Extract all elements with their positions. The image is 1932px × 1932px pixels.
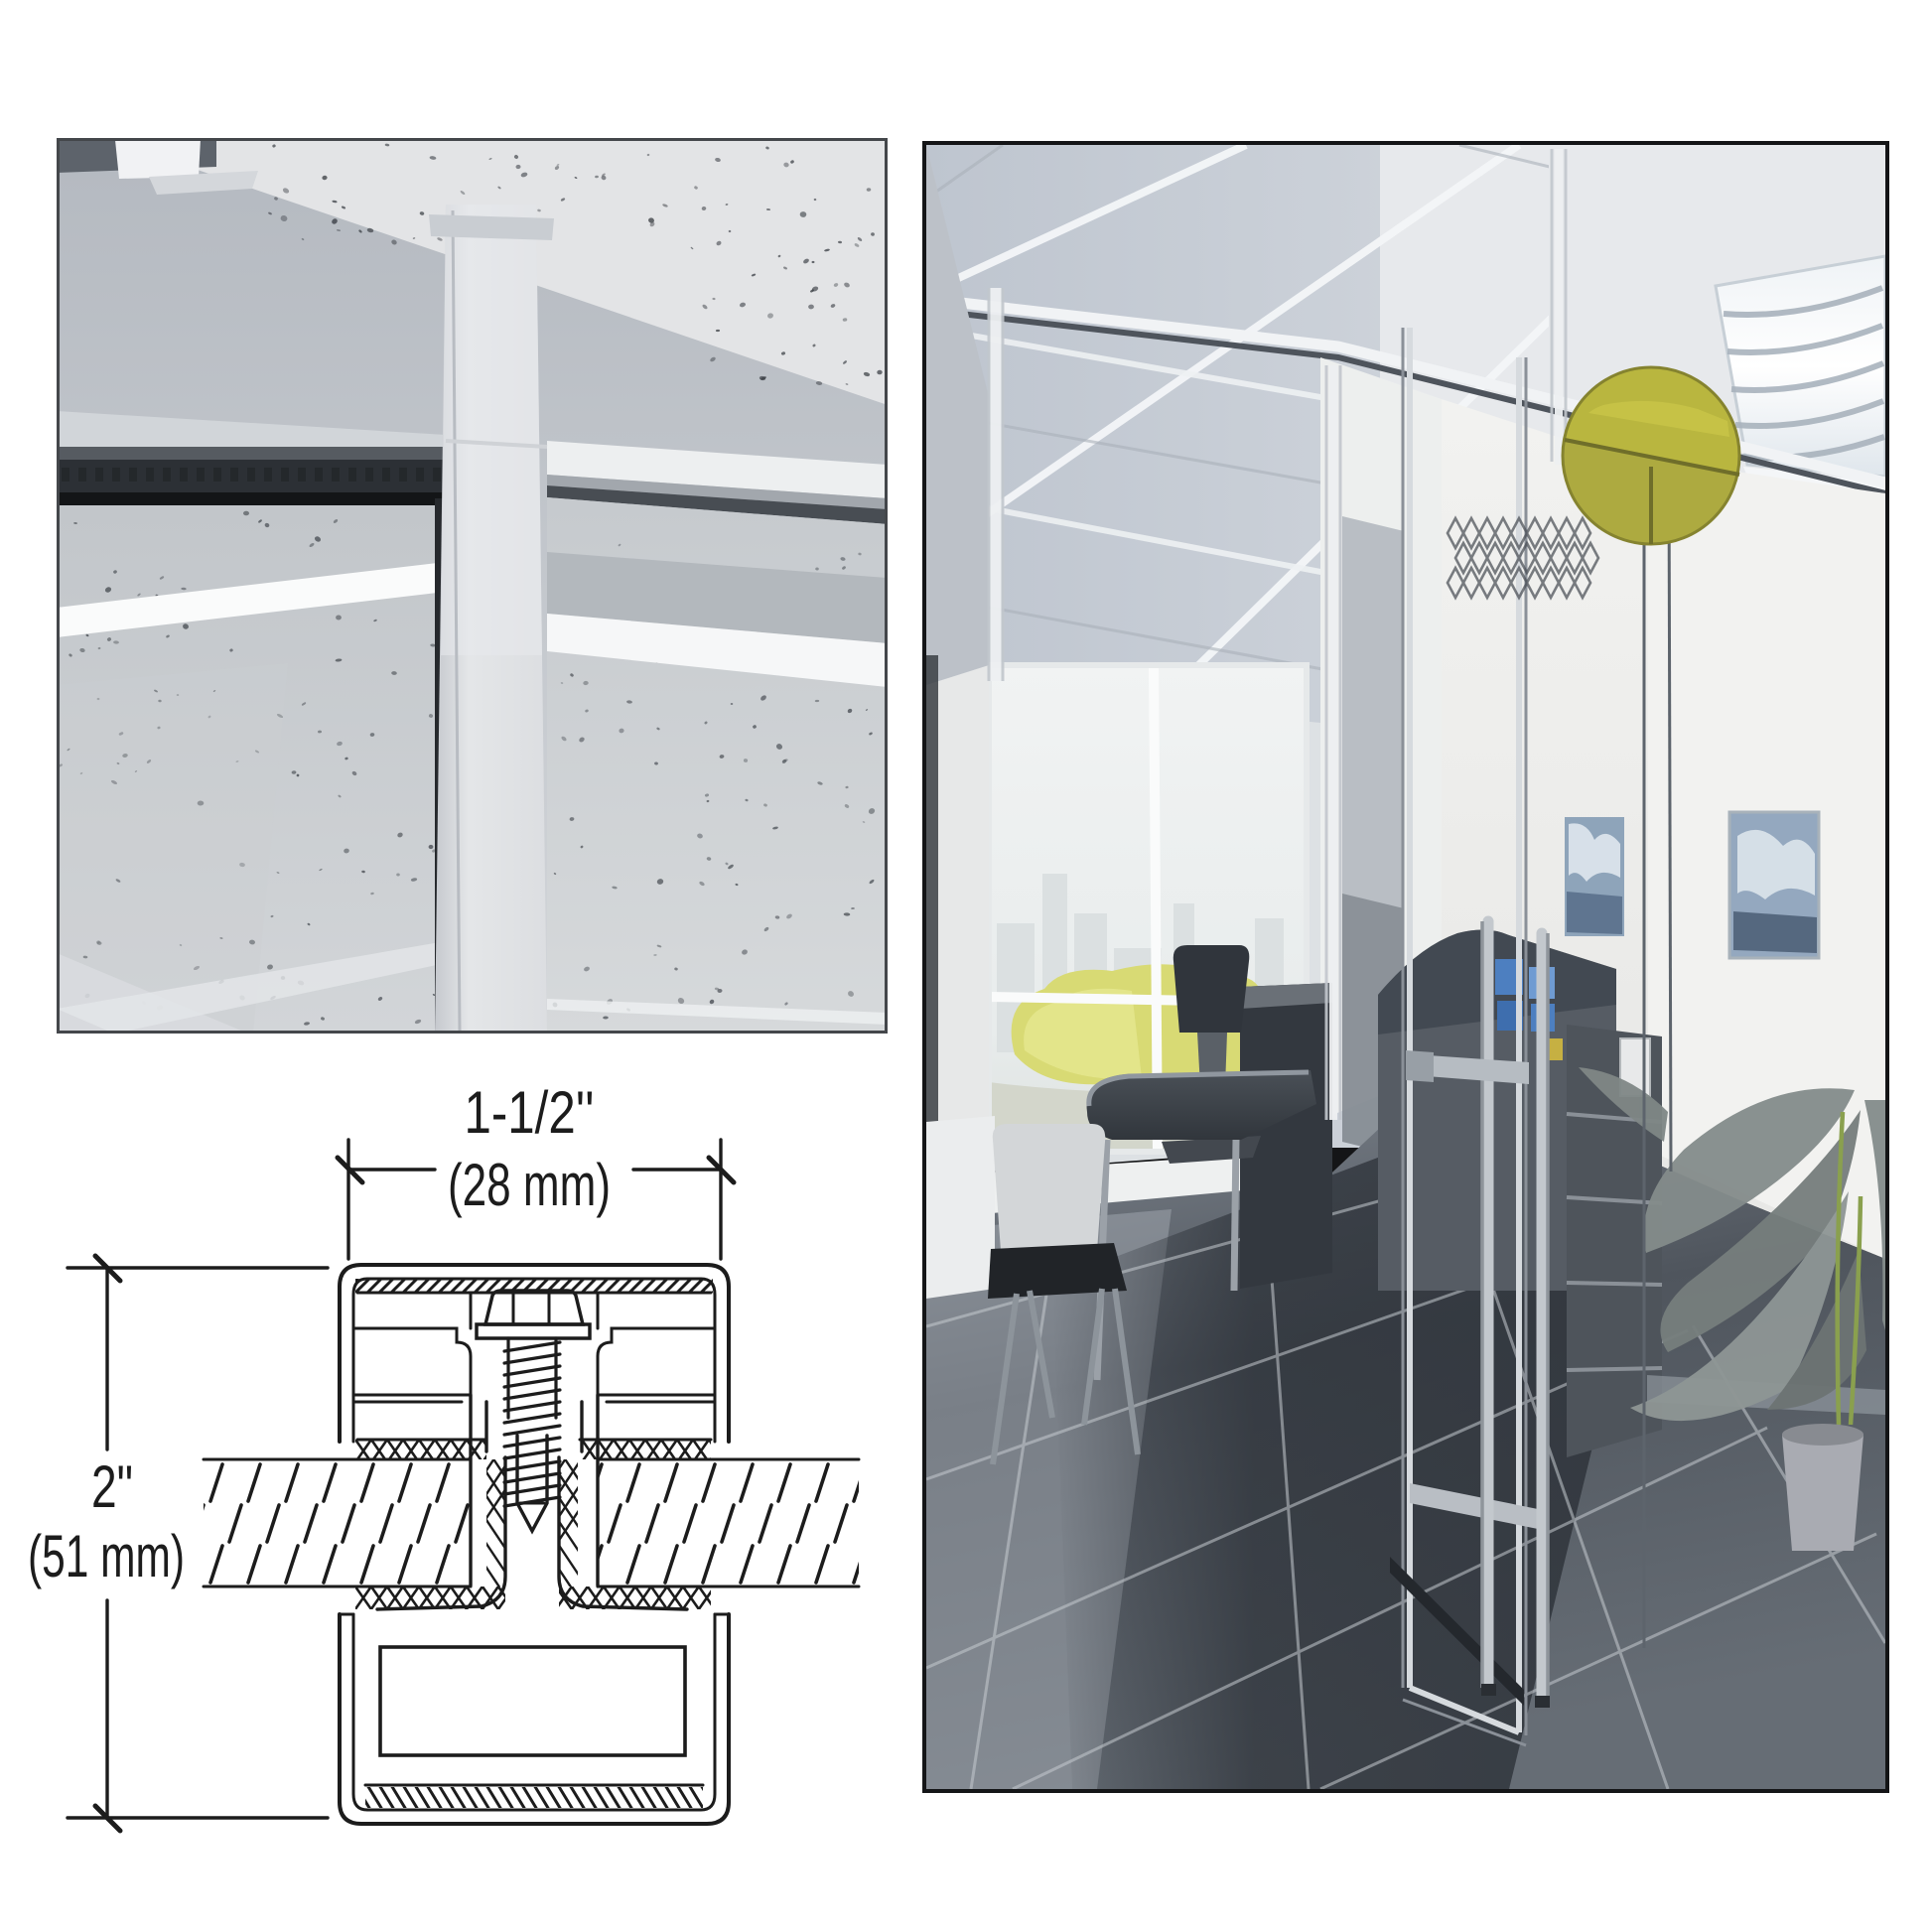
svg-text:2": 2": [91, 1453, 133, 1520]
svg-text:(28 mm): (28 mm): [448, 1152, 611, 1218]
svg-text:1-1/2'': 1-1/2'': [465, 1079, 595, 1146]
svg-text:(51 mm): (51 mm): [28, 1523, 185, 1589]
